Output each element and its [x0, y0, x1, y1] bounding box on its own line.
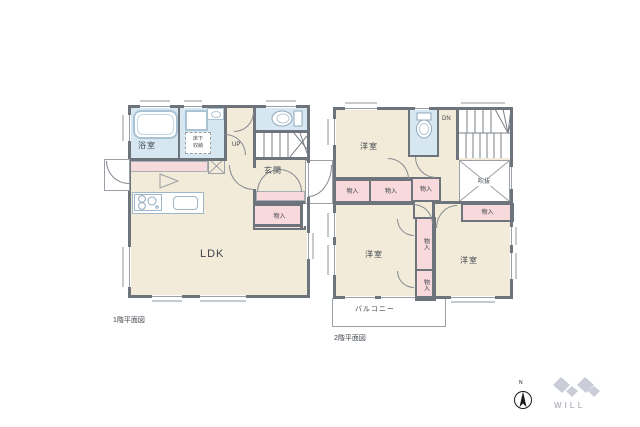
- closet-2f-4-label: 物入: [481, 210, 493, 216]
- wall: [178, 107, 180, 158]
- window-tick: [184, 100, 202, 102]
- kitchen-counter: [132, 192, 204, 214]
- washroom-counter: [130, 161, 208, 172]
- wall: [432, 201, 512, 204]
- floor2-caption: 2階平面図: [334, 335, 366, 342]
- stairs-up-label: UP: [232, 142, 240, 148]
- compass-north-label: N: [519, 381, 523, 386]
- closet-2f-2-label: 物入: [385, 189, 397, 195]
- window-tick: [200, 300, 246, 302]
- window: [510, 253, 513, 279]
- closet-1f-label: 物入: [273, 214, 285, 220]
- closet-2f-6-label: 物入: [423, 279, 429, 291]
- window-tick: [327, 213, 329, 237]
- window: [510, 167, 513, 189]
- window: [415, 107, 429, 110]
- window: [451, 296, 495, 299]
- closet-2f-3: 物入: [411, 177, 441, 202]
- outer-wall: [307, 105, 310, 298]
- window-tick: [515, 227, 517, 245]
- toilet-icon-1f: [268, 109, 304, 129]
- wall: [256, 130, 307, 133]
- stairs-down-label: DN: [442, 116, 451, 122]
- window-tick: [345, 102, 377, 104]
- window: [140, 105, 170, 108]
- ldk-label: LDK: [200, 249, 224, 260]
- void-area: 吹抜: [459, 160, 510, 202]
- stairs-up-area: [256, 133, 307, 157]
- window: [184, 105, 202, 108]
- window-tick: [122, 115, 124, 141]
- wall: [437, 109, 439, 157]
- floor-plan-page: 物入 床下 収納: [0, 0, 640, 427]
- closet-2f-5-label: 物入: [423, 238, 429, 250]
- compass-needle-icon: [512, 387, 534, 413]
- refrigerator-icon: [159, 173, 179, 189]
- underfloor-storage-line1: 床下: [186, 133, 210, 142]
- window: [266, 105, 296, 108]
- washbasin-icon: [207, 108, 224, 120]
- closet-2f-3-label: 物入: [420, 187, 432, 193]
- wall: [408, 109, 410, 157]
- underfloor-storage-line2: 収納: [186, 142, 210, 149]
- window: [345, 107, 377, 110]
- void-label: 吹抜: [477, 178, 491, 186]
- bedroom1-label: 洋室: [360, 143, 378, 151]
- will-logo: WILL: [552, 377, 612, 413]
- floor2-plan: 吹抜 物入 物入 物入 物入 物入 物入: [333, 107, 513, 299]
- window: [345, 296, 375, 299]
- window-tick: [140, 100, 170, 102]
- window: [307, 233, 310, 259]
- window: [333, 213, 336, 237]
- stove-icon: [134, 194, 162, 211]
- wall: [456, 109, 459, 160]
- closet-2f-4: 物入: [461, 203, 514, 222]
- window: [333, 245, 336, 275]
- will-logo-text: WILL: [554, 402, 586, 410]
- window-tick: [327, 245, 329, 275]
- window: [128, 247, 131, 287]
- bathtub-icon: [133, 110, 178, 139]
- wall: [432, 201, 435, 299]
- wall: [128, 158, 224, 161]
- window: [510, 227, 513, 245]
- floor1-plan: 物入 床下 収納: [128, 105, 310, 298]
- window-tick: [327, 119, 329, 145]
- balcony-label: バルコニー: [355, 306, 395, 313]
- closet-2f-1-label: 物入: [346, 189, 358, 195]
- balcony-door-window: [381, 296, 415, 299]
- window-tick: [515, 253, 517, 279]
- underfloor-storage-note: 床下 収納: [185, 132, 211, 154]
- window: [200, 295, 246, 298]
- wall: [333, 201, 413, 203]
- will-logo-mark-icon: [552, 377, 604, 399]
- window: [333, 119, 336, 145]
- window-tick: [312, 233, 314, 259]
- floor1-caption: 1階平面図: [113, 317, 145, 324]
- window-tick: [451, 301, 495, 303]
- compass: N: [510, 381, 536, 415]
- bathroom-label: 浴室: [138, 142, 156, 150]
- stairs-down-treads-icon: [459, 109, 512, 158]
- entrance-label: 玄関: [264, 167, 282, 175]
- window-tick: [122, 247, 124, 287]
- stairs-up-treads-icon: [256, 133, 307, 157]
- window-tick: [461, 102, 505, 104]
- stairs-down-area: [459, 109, 512, 158]
- window-tick: [152, 300, 182, 302]
- washing-machine-icon: [185, 110, 208, 131]
- wall: [253, 157, 307, 160]
- entrance-step: [256, 191, 305, 201]
- window-tick: [266, 100, 296, 102]
- toilet-icon-2f: [414, 112, 434, 140]
- window: [128, 115, 131, 141]
- bedroom3-label: 洋室: [460, 257, 478, 265]
- sink-icon: [173, 196, 198, 210]
- window: [152, 295, 182, 298]
- wall: [253, 201, 305, 204]
- bedroom2-label: 洋室: [365, 251, 383, 259]
- wall: [253, 224, 303, 227]
